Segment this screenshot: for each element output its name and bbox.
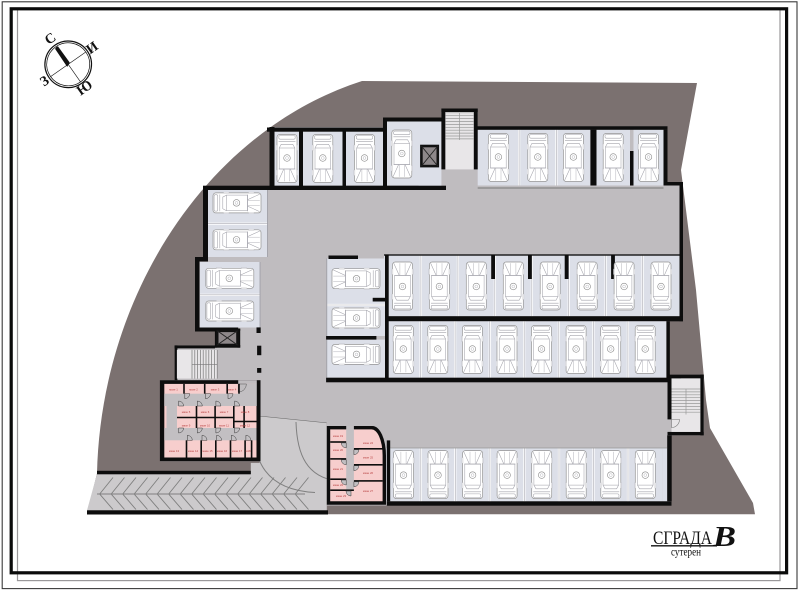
svg-text:мазе 24: мазе 24: [363, 441, 374, 445]
svg-text:мазе 10: мазе 10: [200, 424, 211, 428]
svg-text:мазе 12: мазе 12: [240, 424, 251, 428]
svg-text:мазе 2: мазе 2: [189, 388, 198, 392]
svg-text:мазе 17: мазе 17: [232, 449, 243, 453]
svg-text:мазе 6: мазе 6: [201, 410, 210, 414]
svg-text:мазе 13: мазе 13: [169, 449, 180, 453]
svg-text:мазе 5: мазе 5: [182, 410, 191, 414]
svg-text:мазе 26: мазе 26: [363, 471, 374, 475]
svg-text:мазе 15: мазе 15: [202, 449, 213, 453]
svg-text:мазе 8: мазе 8: [241, 410, 250, 414]
svg-text:мазе 1: мазе 1: [169, 388, 178, 392]
svg-text:мазе 25: мазе 25: [363, 456, 374, 460]
svg-text:мазе 27: мазе 27: [363, 489, 374, 493]
svg-text:В: В: [712, 521, 736, 553]
svg-text:мазе 23: мазе 23: [336, 494, 347, 498]
svg-text:мазе 7: мазе 7: [220, 410, 229, 414]
svg-text:мазе 22: мазе 22: [333, 483, 344, 487]
svg-text:м18: м18: [245, 449, 250, 453]
svg-text:мазе 20: мазе 20: [333, 448, 344, 452]
svg-text:мазе 16: мазе 16: [217, 449, 228, 453]
svg-text:мазе 3: мазе 3: [211, 388, 220, 392]
svg-text:мазе 21: мазе 21: [333, 467, 344, 471]
svg-text:сутерен: сутерен: [671, 545, 701, 559]
svg-text:мазе 4: мазе 4: [228, 388, 237, 392]
svg-text:мазе 9: мазе 9: [182, 424, 191, 428]
svg-text:мазе 19: мазе 19: [333, 434, 344, 438]
svg-text:мазе 14: мазе 14: [188, 449, 199, 453]
svg-text:мазе 11: мазе 11: [219, 424, 229, 428]
